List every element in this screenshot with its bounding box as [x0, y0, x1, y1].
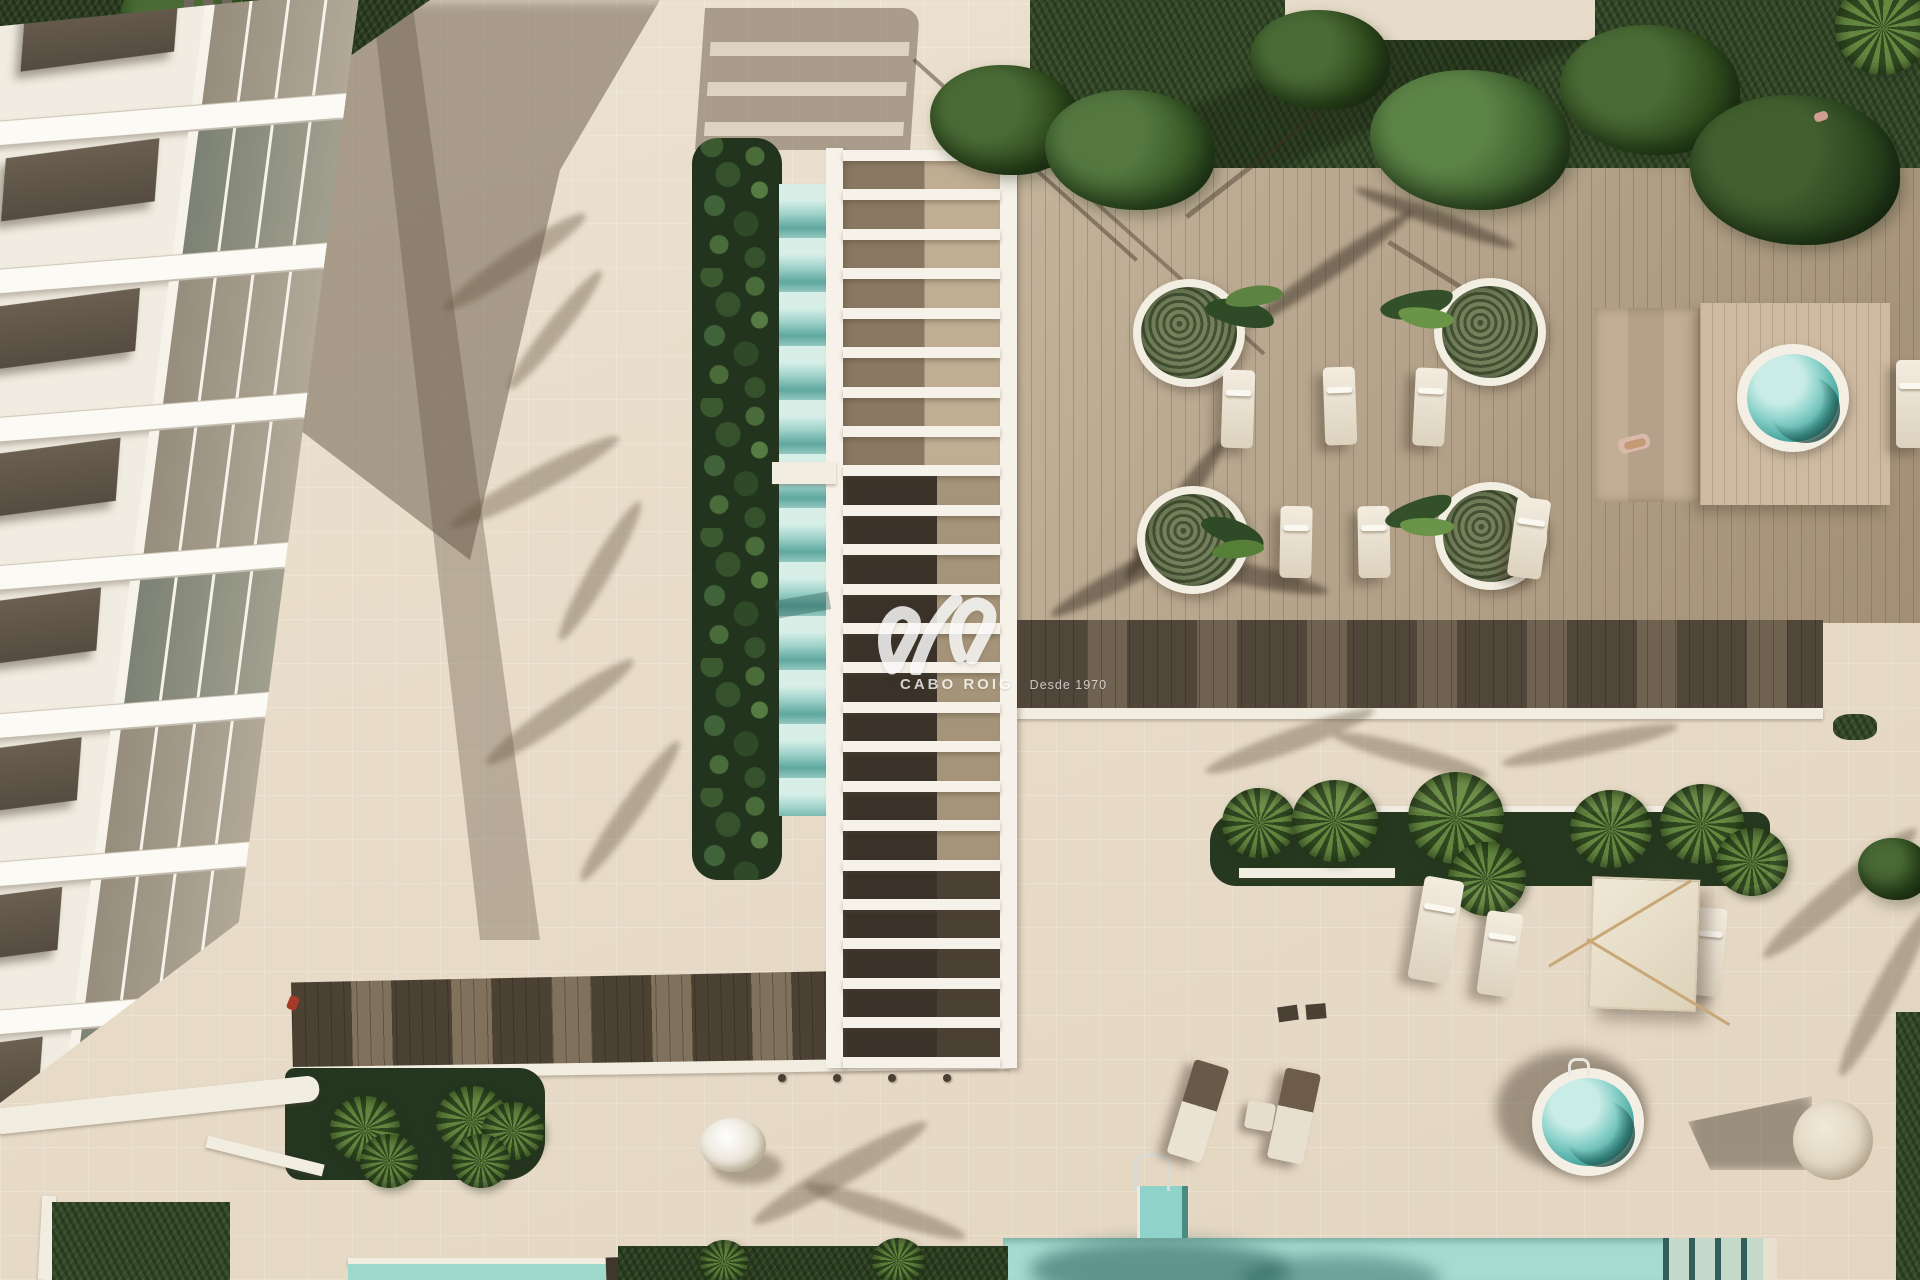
water-shadow [1566, 1100, 1635, 1167]
sun-lounger [1896, 360, 1920, 448]
pergola-rung [843, 426, 1000, 437]
platform-steps [1594, 308, 1700, 502]
terrace-awning [0, 887, 62, 970]
bollard-light [778, 1074, 786, 1082]
plunge-pool [1737, 344, 1849, 452]
lawn-patch-bottom-left [52, 1202, 230, 1280]
fan-palm-tree [1716, 828, 1788, 896]
aerial-render-scene: CABO ROIG Desde 1970 [0, 0, 1920, 1280]
jacuzzi [1532, 1068, 1644, 1176]
round-parasol-top [700, 1118, 766, 1172]
pergola-rung [843, 820, 1000, 831]
sun-lounger [1407, 875, 1464, 984]
sun-lounger [1279, 506, 1312, 579]
pergola-rung [843, 978, 1000, 989]
palm-shadow [550, 496, 649, 646]
pergola-rung [843, 268, 1000, 279]
palm-shadow [572, 735, 688, 887]
wood-lounger [1166, 1059, 1229, 1163]
lap-pool-bridge [772, 462, 836, 484]
pergola-rung [843, 860, 1000, 871]
bollard-light [943, 1074, 951, 1082]
watermark-text-row: CABO ROIG Desde 1970 [900, 676, 1107, 693]
pavement-palm-shadow [1500, 717, 1680, 774]
watermark-tagline: Desde 1970 [1030, 678, 1107, 692]
glass-balcony-front [114, 568, 295, 704]
sun-lounger [1221, 369, 1256, 448]
siv-monogram-logo [872, 580, 1012, 675]
pergola-rung [843, 938, 1000, 949]
terrace-awning [0, 438, 121, 521]
glass-balcony-front [172, 119, 353, 255]
sun-lounger [1412, 367, 1448, 447]
pool-steps-zone [1663, 1238, 1763, 1280]
terrace-awning [0, 1186, 23, 1269]
pergola-rung [843, 229, 1000, 240]
pergola-rung [843, 189, 1000, 200]
pergola-rung [843, 347, 1000, 358]
pergola-rung [843, 741, 1000, 752]
glass-balcony-front [133, 418, 314, 554]
bollard-light [833, 1074, 841, 1082]
pergola-rung [843, 1057, 1000, 1068]
pool-ladder [1134, 1154, 1170, 1191]
terrace-awning [1, 138, 159, 221]
terrace-awning [0, 288, 140, 371]
lower-left-pool [348, 1264, 606, 1280]
right-lawn-bit [1833, 714, 1877, 740]
water-shadow [1771, 376, 1840, 443]
pool-mat [1305, 1003, 1326, 1020]
sun-lounger [1476, 910, 1523, 998]
bollard-light [888, 1074, 896, 1082]
pergola-rung [843, 899, 1000, 910]
sun-lounger [1323, 366, 1358, 445]
lawn-band-bottom-middle [618, 1246, 1008, 1280]
watermark-brand: CABO ROIG [900, 676, 1014, 693]
lap-pool [779, 184, 828, 816]
walkway-bollards [778, 1074, 951, 1082]
walkway-edge [0, 1075, 320, 1135]
pergola-rung [843, 387, 1000, 398]
pool-mat [1277, 1005, 1299, 1023]
glass-balcony-front [192, 0, 360, 105]
square-parasol [1588, 876, 1701, 1012]
watermark: CABO ROIG Desde 1970 [862, 580, 1162, 710]
terrace-awning [0, 737, 82, 820]
right-lawn-strip [1896, 1012, 1920, 1280]
fan-palm-tree [452, 1134, 510, 1188]
round-daybed [1793, 1100, 1873, 1180]
hedge-planter-curb [1239, 868, 1395, 878]
terrace-awning [0, 587, 101, 670]
pergola-rung [843, 505, 1000, 516]
fan-palm-tree [872, 1238, 924, 1280]
pool-right-coping [1763, 1238, 1777, 1280]
pergola-cast-shadow [695, 8, 920, 150]
glass-balcony-front [95, 718, 276, 854]
pool-entry-step [1140, 1186, 1188, 1238]
hedge-row-lap-pool [692, 138, 782, 880]
pavement-palm-shadow [801, 1174, 969, 1247]
glass-balcony-front [75, 867, 256, 1003]
fan-palm-tree [1292, 780, 1378, 862]
fan-palm-tree [1222, 788, 1296, 858]
pergola-rung [843, 465, 1000, 476]
glass-balcony-front [153, 268, 334, 404]
pergola-rung [843, 781, 1000, 792]
tree-canopy [1858, 838, 1920, 900]
fan-palm-tree [360, 1134, 418, 1188]
side-table [1244, 1100, 1276, 1132]
pergola-shadow-slats [704, 16, 912, 142]
fan-palm-tree [1570, 790, 1652, 868]
pergola-rung [843, 308, 1000, 319]
fan-palm-tree [700, 1240, 748, 1280]
pergola-rung [843, 544, 1000, 555]
pergola-rung [843, 1017, 1000, 1028]
jacuzzi-handrail [1568, 1058, 1590, 1075]
wood-lounger [1267, 1067, 1321, 1164]
